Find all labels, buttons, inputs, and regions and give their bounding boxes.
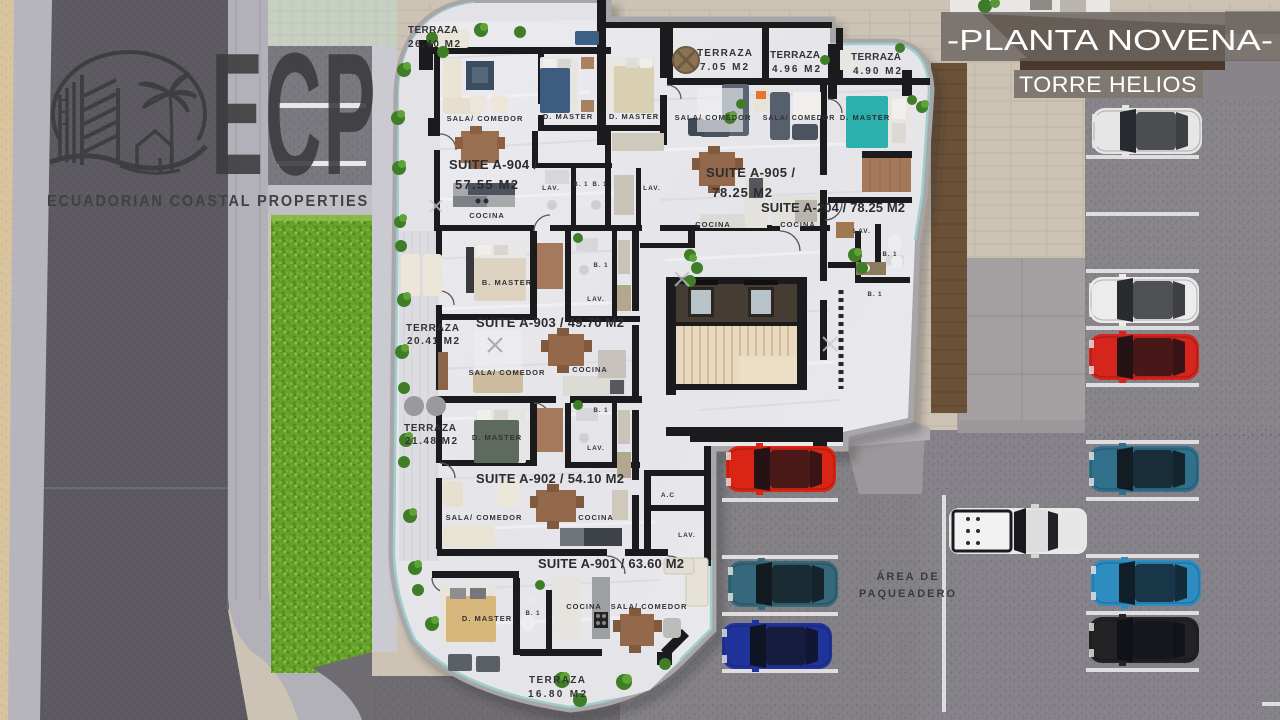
svg-text:SALA/ COMEDOR: SALA/ COMEDOR	[447, 114, 524, 123]
svg-text:SALA/ COMEDOR: SALA/ COMEDOR	[469, 368, 546, 377]
svg-text:B. 1: B. 1	[592, 182, 607, 188]
svg-text:PAQUEADERO: PAQUEADERO	[859, 588, 957, 600]
svg-text:B. 1: B. 1	[573, 182, 588, 188]
svg-text:ECP: ECP	[211, 17, 377, 212]
svg-text:LAV.: LAV.	[542, 185, 560, 192]
svg-text:LAV.: LAV.	[587, 445, 605, 452]
svg-text:LAV.: LAV.	[587, 296, 605, 303]
svg-text:-PLANTA NOVENA-: -PLANTA NOVENA-	[947, 25, 1273, 57]
svg-text:SUITE A-905 /: SUITE A-905 /	[706, 165, 795, 180]
svg-text:D. MASTER: D. MASTER	[840, 113, 890, 122]
svg-text:TORRE HELIOS: TORRE HELIOS	[1019, 72, 1197, 97]
svg-text:TERRAZA: TERRAZA	[404, 423, 456, 434]
svg-text:B. MASTER: B. MASTER	[482, 278, 532, 287]
svg-text:SUITE A-902 / 54.10 M2: SUITE A-902 / 54.10 M2	[476, 471, 624, 486]
svg-text:D. MASTER: D. MASTER	[472, 433, 522, 442]
svg-text:21.48 M2: 21.48 M2	[405, 436, 457, 447]
svg-text:D. MASTER: D. MASTER	[543, 112, 593, 121]
svg-text:COCINA: COCINA	[572, 365, 608, 374]
svg-text:SALA/ COMEDOR: SALA/ COMEDOR	[446, 513, 523, 522]
svg-text:COCINA: COCINA	[566, 602, 602, 611]
svg-text:B. 1: B. 1	[593, 263, 608, 269]
svg-text:TERRAZA: TERRAZA	[406, 323, 459, 334]
svg-text:LAV.: LAV.	[853, 228, 871, 235]
svg-text:B. 1: B. 1	[593, 408, 608, 414]
svg-text:COCINA: COCINA	[578, 513, 614, 522]
svg-text:ECUADORIAN COASTAL PROPERTIES: ECUADORIAN COASTAL PROPERTIES	[47, 193, 369, 210]
svg-text:COCINA: COCINA	[695, 220, 731, 229]
svg-text:26.40 M2: 26.40 M2	[408, 39, 460, 50]
svg-text:B. 1: B. 1	[867, 292, 882, 298]
svg-text:57.55 M2: 57.55 M2	[455, 177, 518, 192]
svg-text:COCINA: COCINA	[469, 211, 505, 220]
svg-text:SALA/ COMEDOR: SALA/ COMEDOR	[763, 115, 836, 122]
svg-text:A.C: A.C	[661, 492, 675, 499]
svg-text:B. 1: B. 1	[525, 611, 540, 617]
svg-text:SUITE A-903 / 49.70 M2: SUITE A-903 / 49.70 M2	[476, 315, 624, 330]
svg-text:SUITE A-904 /: SUITE A-904 /	[449, 157, 537, 172]
svg-text:COCINA: COCINA	[780, 220, 816, 229]
svg-text:TERRAZA: TERRAZA	[408, 25, 458, 36]
svg-text:TERRAZA: TERRAZA	[851, 52, 901, 63]
svg-text:LAV.: LAV.	[678, 532, 696, 539]
svg-text:ÁREA DE: ÁREA DE	[876, 570, 939, 583]
svg-text:TERRAZA: TERRAZA	[770, 50, 820, 61]
svg-text:D. MASTER: D. MASTER	[462, 614, 512, 623]
svg-text:78.25 M2: 78.25 M2	[712, 185, 772, 200]
svg-text:20.41 M2: 20.41 M2	[407, 336, 459, 347]
svg-text:SUITE A-204 / 78.25 M2: SUITE A-204 / 78.25 M2	[761, 200, 905, 215]
svg-text:D. MASTER: D. MASTER	[609, 112, 659, 121]
svg-text:B. 1: B. 1	[882, 252, 897, 258]
svg-text:SALA/ COMEDOR: SALA/ COMEDOR	[675, 113, 752, 122]
svg-text:SALA/ COMEDOR: SALA/ COMEDOR	[611, 602, 688, 611]
svg-text:LAV.: LAV.	[643, 185, 661, 192]
svg-text:SUITE A-901 / 63.60 M2: SUITE A-901 / 63.60 M2	[538, 556, 684, 571]
svg-text:16.80 M2: 16.80 M2	[528, 689, 586, 700]
